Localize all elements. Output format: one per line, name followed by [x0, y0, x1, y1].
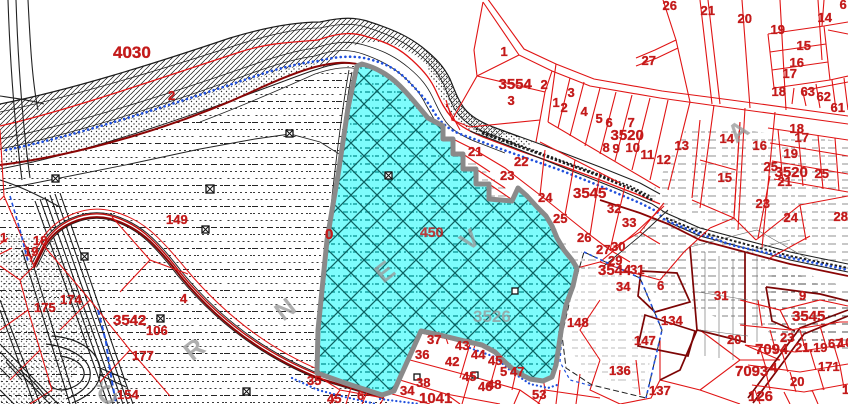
svg-text:5: 5 — [596, 111, 603, 126]
svg-text:6: 6 — [357, 388, 364, 403]
svg-text:175: 175 — [34, 300, 56, 315]
svg-text:148: 148 — [567, 315, 589, 330]
svg-text:177: 177 — [132, 348, 154, 363]
svg-text:14: 14 — [818, 10, 833, 25]
svg-text:28: 28 — [834, 209, 848, 224]
svg-text:14: 14 — [720, 131, 735, 146]
svg-text:18: 18 — [772, 84, 786, 99]
svg-text:47: 47 — [510, 364, 524, 379]
svg-text:20: 20 — [727, 332, 741, 347]
svg-text:20: 20 — [738, 11, 752, 26]
svg-text:4: 4 — [770, 360, 778, 375]
svg-text:4: 4 — [180, 291, 188, 306]
svg-text:44: 44 — [471, 347, 486, 362]
svg-text:21: 21 — [701, 3, 715, 18]
svg-text:2: 2 — [541, 77, 548, 92]
svg-text:17: 17 — [783, 66, 797, 81]
svg-text:34: 34 — [616, 279, 631, 294]
svg-text:24: 24 — [538, 190, 553, 205]
svg-text:25: 25 — [553, 211, 567, 226]
svg-text:4: 4 — [581, 104, 589, 119]
svg-text:137: 137 — [649, 383, 671, 398]
svg-text:0: 0 — [325, 226, 333, 243]
svg-text:45: 45 — [462, 369, 476, 384]
svg-text:62: 62 — [817, 89, 831, 104]
svg-text:45: 45 — [327, 391, 341, 404]
svg-text:31: 31 — [630, 262, 644, 277]
svg-text:43: 43 — [455, 338, 469, 353]
svg-text:38: 38 — [416, 375, 430, 390]
svg-text:2: 2 — [168, 88, 175, 103]
svg-text:171: 171 — [818, 359, 840, 374]
svg-text:25: 25 — [815, 166, 829, 181]
svg-text:32: 32 — [607, 201, 621, 216]
svg-text:21.19: 21.19 — [795, 340, 828, 355]
svg-text:35: 35 — [307, 373, 321, 388]
svg-text:3554: 3554 — [499, 76, 533, 93]
svg-text:42: 42 — [445, 354, 459, 369]
svg-text:1: 1 — [553, 95, 560, 110]
svg-text:18: 18 — [842, 382, 848, 397]
svg-text:21: 21 — [778, 174, 792, 189]
svg-text:9: 9 — [799, 288, 806, 303]
svg-text:3: 3 — [508, 93, 515, 108]
svg-text:23: 23 — [500, 168, 514, 183]
svg-text:3545: 3545 — [792, 308, 825, 325]
svg-text:5: 5 — [500, 364, 507, 379]
svg-text:149: 149 — [166, 212, 188, 227]
svg-text:37: 37 — [427, 332, 441, 347]
svg-text:2: 2 — [561, 100, 568, 115]
svg-text:174: 174 — [60, 292, 82, 307]
svg-text:11: 11 — [641, 147, 655, 162]
svg-text:34: 34 — [400, 383, 415, 398]
svg-text:154: 154 — [117, 387, 139, 402]
svg-text:3: 3 — [568, 85, 575, 100]
svg-text:46: 46 — [478, 379, 492, 394]
svg-text:20: 20 — [790, 374, 804, 389]
svg-text:7093: 7093 — [735, 363, 768, 380]
svg-text:33: 33 — [622, 215, 636, 230]
svg-text:31: 31 — [714, 288, 728, 303]
svg-text:24: 24 — [784, 210, 799, 225]
svg-text:22: 22 — [514, 154, 528, 169]
svg-text:13: 13 — [675, 138, 689, 153]
svg-text:9: 9 — [613, 141, 620, 156]
svg-text:19: 19 — [784, 146, 798, 161]
svg-text:6: 6 — [840, 0, 847, 12]
svg-text:27: 27 — [642, 53, 656, 68]
svg-text:63: 63 — [801, 84, 815, 99]
svg-text:23: 23 — [756, 196, 770, 211]
svg-text:1: 1 — [0, 230, 7, 245]
svg-text:147: 147 — [634, 333, 656, 348]
svg-text:19: 19 — [771, 22, 785, 37]
svg-text:15: 15 — [718, 170, 732, 185]
svg-text:61: 61 — [831, 100, 845, 115]
svg-text:10: 10 — [838, 335, 848, 350]
svg-text:36: 36 — [415, 347, 429, 362]
svg-text:53: 53 — [532, 387, 546, 402]
svg-text:26: 26 — [577, 230, 591, 245]
svg-text:16: 16 — [753, 138, 767, 153]
svg-text:12: 12 — [657, 152, 671, 167]
svg-text:19: 19 — [24, 244, 38, 259]
svg-text:23: 23 — [780, 330, 794, 345]
svg-text:17: 17 — [795, 130, 809, 145]
svg-text:30: 30 — [611, 239, 625, 254]
svg-text:136: 136 — [609, 363, 631, 378]
svg-text:106: 106 — [146, 323, 168, 338]
svg-text:450: 450 — [420, 224, 444, 240]
svg-text:15: 15 — [797, 38, 811, 53]
svg-text:3542: 3542 — [113, 312, 146, 329]
svg-text:3544: 3544 — [598, 262, 632, 279]
svg-text:3526: 3526 — [473, 307, 511, 326]
svg-text:21: 21 — [468, 144, 482, 159]
svg-text:126: 126 — [748, 388, 773, 404]
svg-text:10: 10 — [626, 140, 640, 155]
svg-text:6: 6 — [657, 278, 664, 293]
svg-text:1041: 1041 — [419, 390, 452, 404]
svg-text:134: 134 — [661, 313, 683, 328]
svg-text:4030: 4030 — [113, 43, 151, 62]
svg-text:26: 26 — [663, 0, 677, 13]
svg-text:3545: 3545 — [573, 185, 606, 202]
svg-text:1: 1 — [501, 44, 508, 59]
svg-text:8: 8 — [603, 140, 610, 155]
